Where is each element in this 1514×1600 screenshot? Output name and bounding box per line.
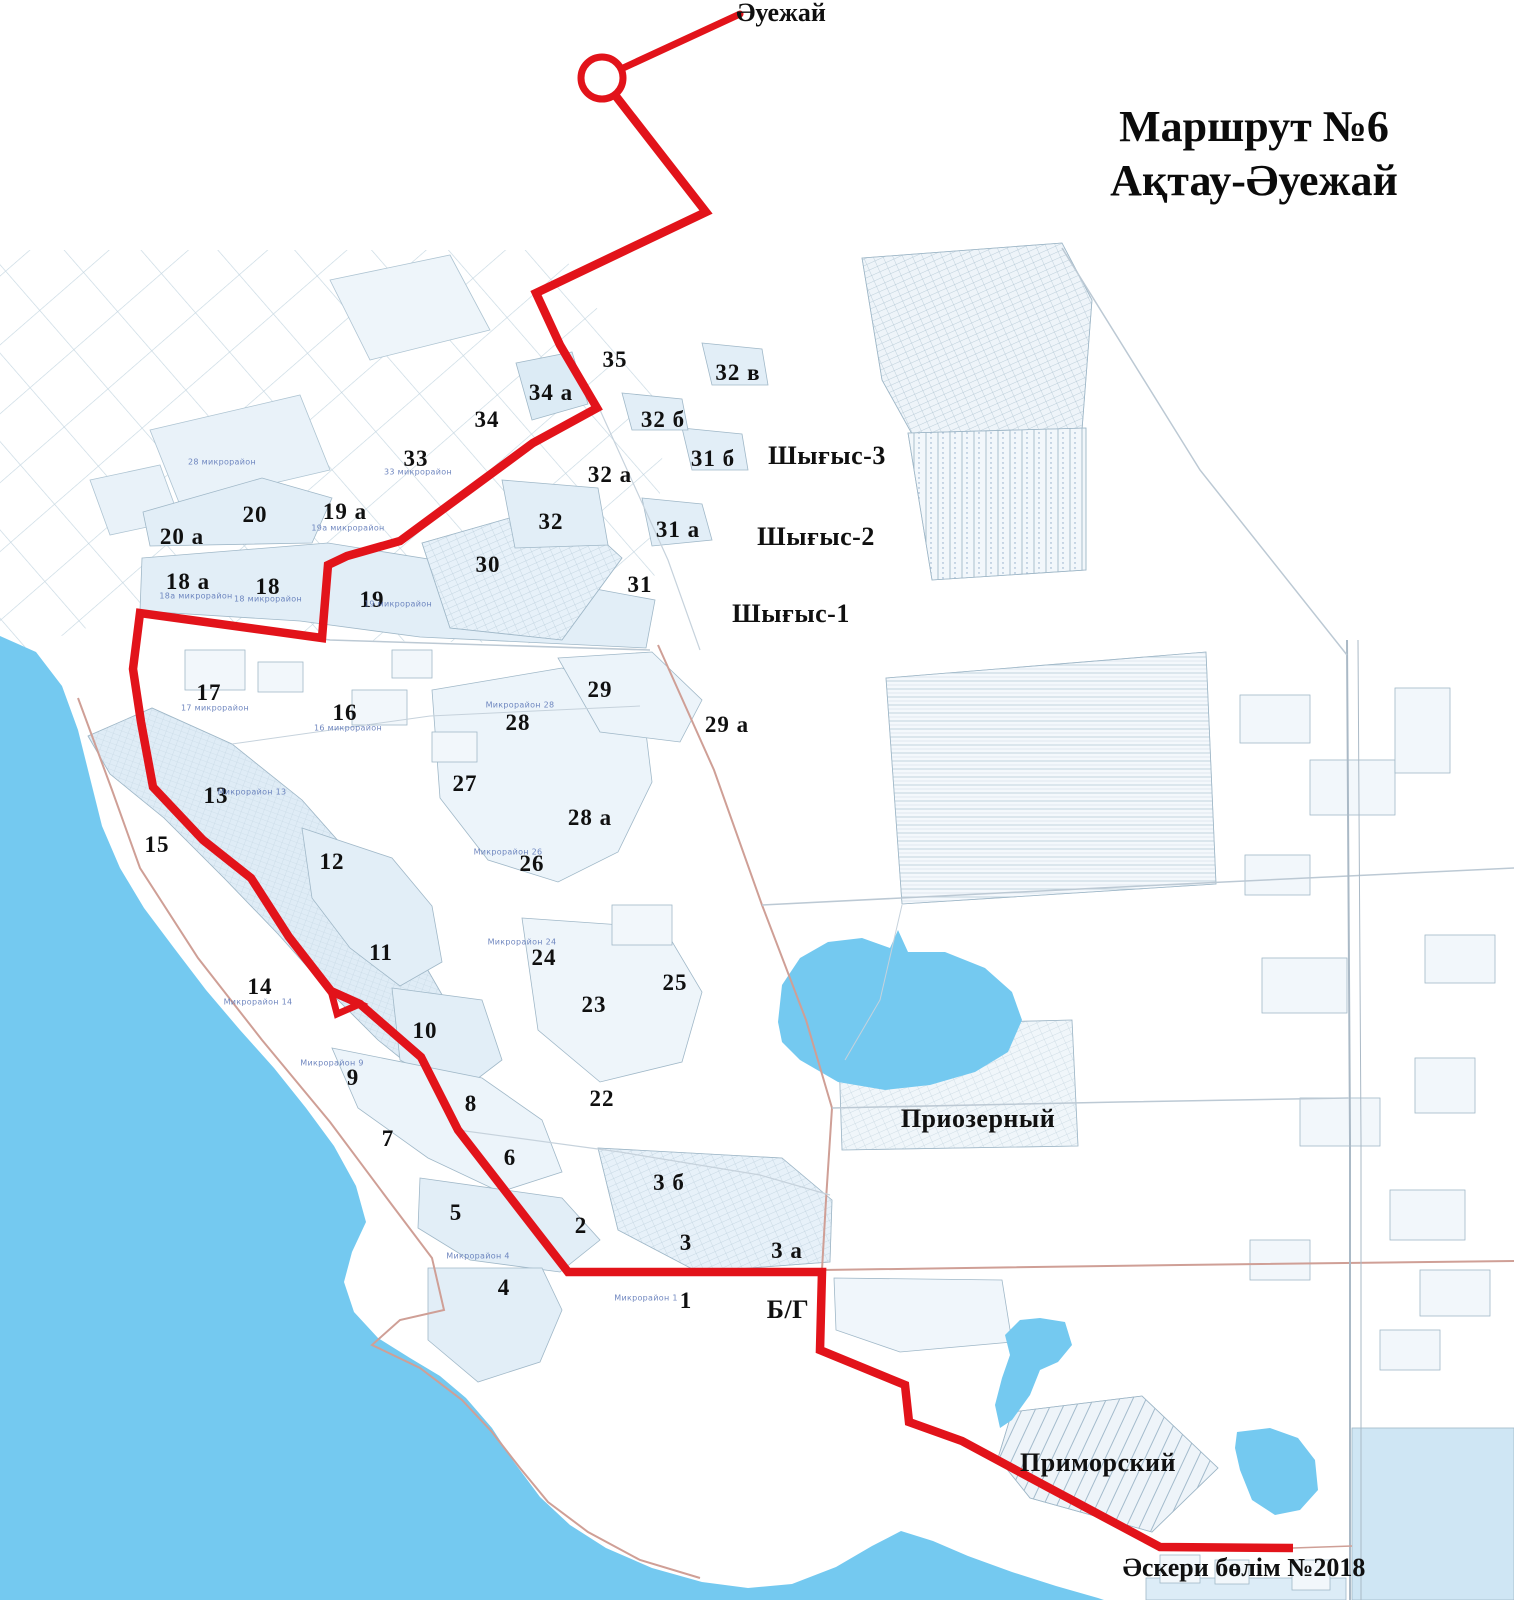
map-title-line2: Ақтау-Әуежай (1108, 154, 1400, 208)
airport-stop-circle (581, 57, 623, 99)
map-title: Маршрут №6 Ақтау-Әуежай (1108, 100, 1400, 208)
route-airport-link (621, 14, 740, 69)
city-map-canvas (0, 0, 1514, 1600)
map-title-line1: Маршрут №6 (1108, 100, 1400, 154)
route-map-page: 1233 а3 б45678910111213141516171818 а191… (0, 0, 1514, 1600)
lake-primorsky-east (1235, 1428, 1318, 1515)
